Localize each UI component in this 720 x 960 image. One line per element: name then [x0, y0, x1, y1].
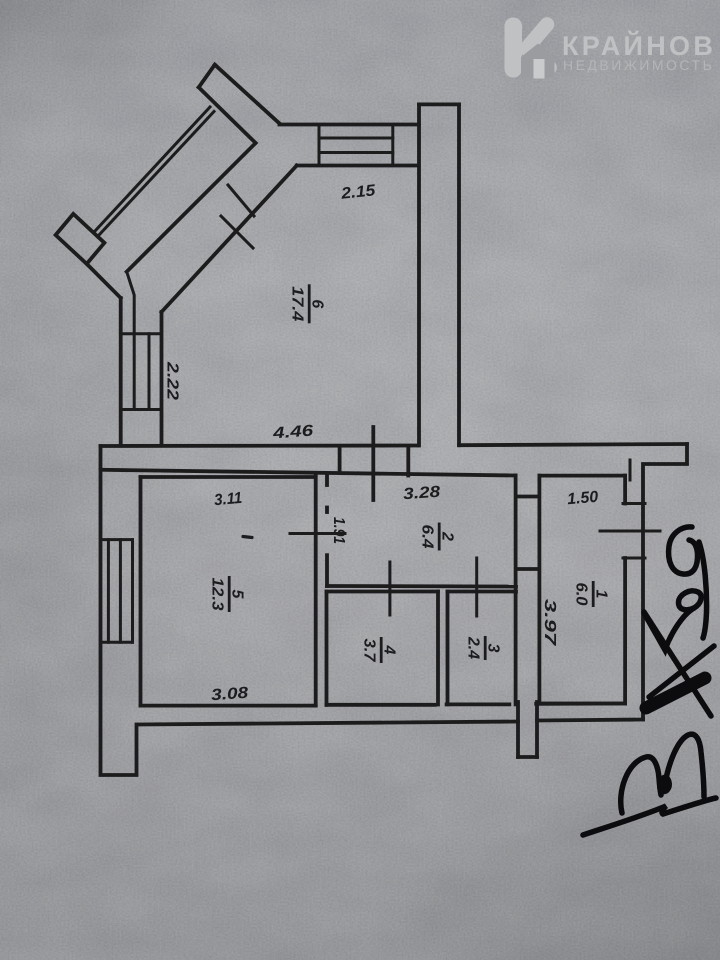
- svg-text:НЕДВИЖИМОСТЬ: НЕДВИЖИМОСТЬ: [563, 57, 714, 73]
- svg-text:6: 6: [309, 299, 326, 308]
- svg-text:5: 5: [229, 590, 246, 600]
- svg-text:2: 2: [439, 531, 456, 541]
- svg-text:4: 4: [381, 645, 398, 655]
- svg-text:3.28: 3.28: [403, 484, 441, 504]
- svg-text:6.4: 6.4: [419, 525, 436, 549]
- svg-text:2.22: 2.22: [164, 361, 181, 400]
- svg-text:3.08: 3.08: [211, 685, 249, 705]
- svg-text:1.91: 1.91: [330, 517, 347, 544]
- svg-text:2.4: 2.4: [465, 636, 482, 659]
- svg-text:17.4: 17.4: [289, 286, 306, 321]
- svg-text:3: 3: [485, 644, 502, 653]
- svg-text:3.11: 3.11: [214, 490, 243, 509]
- svg-text:1.50: 1.50: [567, 489, 599, 509]
- svg-text:1: 1: [593, 590, 610, 599]
- svg-text:3.97: 3.97: [541, 599, 558, 647]
- svg-text:3.7: 3.7: [361, 639, 378, 663]
- svg-text:6.0: 6.0: [573, 583, 590, 606]
- svg-text:4.46: 4.46: [271, 423, 313, 443]
- svg-text:12.3: 12.3: [209, 578, 226, 611]
